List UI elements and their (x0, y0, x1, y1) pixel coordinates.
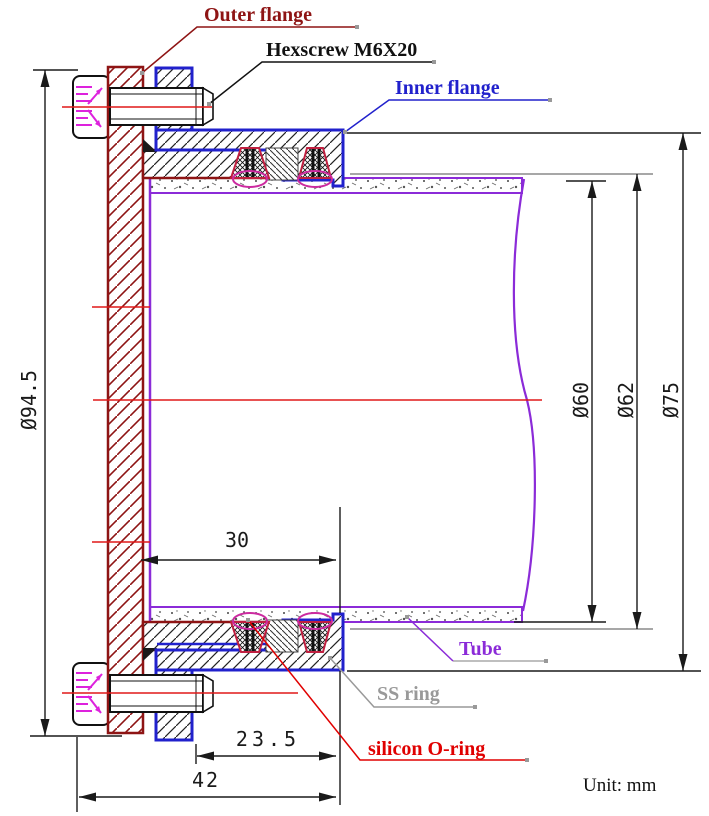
label-ss-ring: SS ring (377, 683, 440, 705)
label-outer-flange: Outer flange (204, 4, 312, 26)
dimension-dia-62: Ø62 (350, 174, 653, 629)
dim-label-dia-60: Ø60 (569, 382, 593, 418)
dim-label-flange-od: Ø94.5 (17, 370, 41, 430)
dimension-len-23-5: 23.5 (196, 727, 336, 764)
dimension-flange-od: Ø94.5 (17, 70, 122, 736)
tube-break-line (514, 179, 535, 611)
label-silicon-o-ring: silicon O-ring (368, 738, 485, 760)
label-inner-flange: Inner flange (395, 77, 500, 99)
label-hexscrew: Hexscrew M6X20 (266, 39, 417, 61)
dim-label-len-42: 42 (192, 768, 220, 792)
flange-assembly-drawing: Ø94.5 Ø75 Ø62 Ø60 30 23.5 (0, 0, 709, 816)
callout-ss-ring: SS ring (328, 656, 477, 709)
dim-label-len-23-5: 23.5 (236, 727, 300, 751)
dimension-dia-75: Ø75 (347, 133, 701, 671)
drawing-canvas: Ø94.5 Ø75 Ø62 Ø60 30 23.5 (0, 0, 709, 816)
ss-ring-bottom (266, 620, 298, 652)
dim-label-dia-75: Ø75 (659, 382, 683, 418)
ss-ring-top (266, 148, 298, 180)
dim-label-dia-62: Ø62 (614, 382, 638, 418)
callout-inner-flange: Inner flange (343, 77, 552, 134)
unit-note: Unit: mm (583, 775, 657, 796)
label-tube: Tube (459, 638, 502, 660)
dim-label-len-30: 30 (225, 528, 249, 552)
